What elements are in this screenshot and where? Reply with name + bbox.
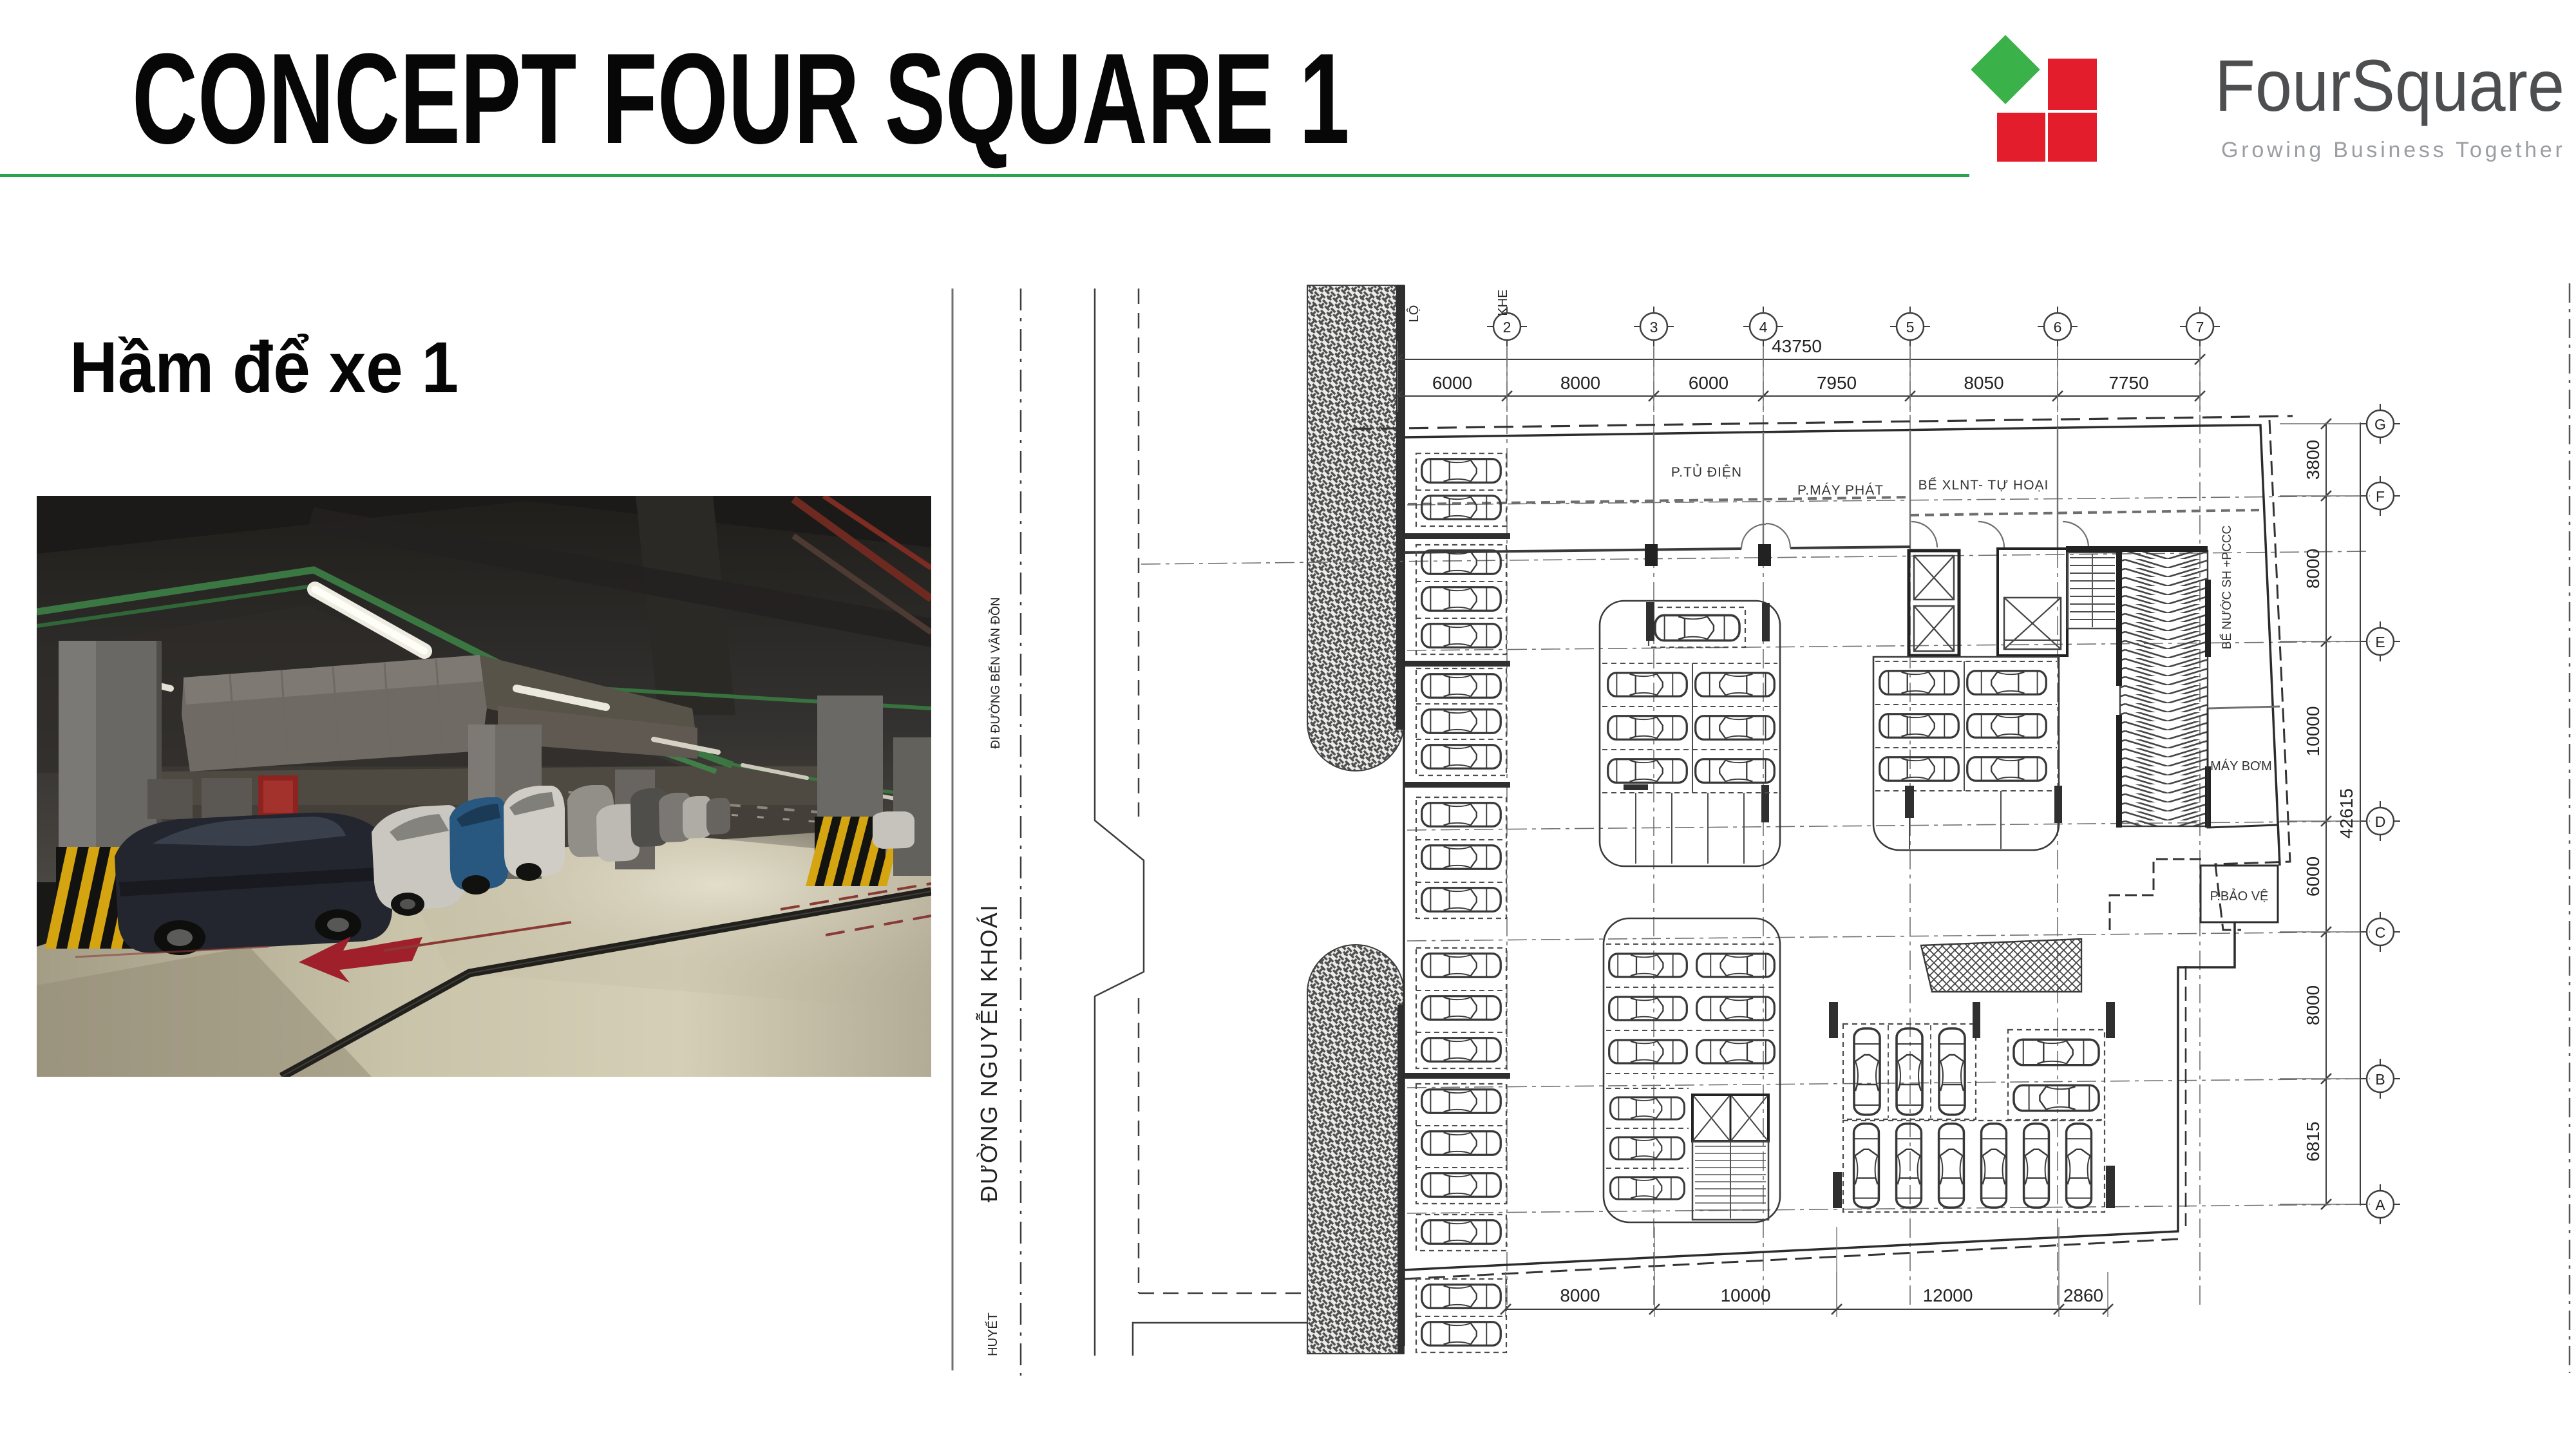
svg-text:ĐƯỜNG NGUYỄN KHOÁI: ĐƯỜNG NGUYỄN KHOÁI bbox=[975, 904, 1002, 1202]
svg-text:BỂ NƯỚC SH +PCCC: BỂ NƯỚC SH +PCCC bbox=[2220, 526, 2234, 649]
svg-text:7: 7 bbox=[2196, 319, 2204, 336]
svg-text:8000: 8000 bbox=[2303, 549, 2323, 589]
svg-text:A: A bbox=[2375, 1197, 2385, 1213]
svg-text:10000: 10000 bbox=[1721, 1285, 1771, 1305]
svg-text:HUYẾT: HUYẾT bbox=[985, 1312, 1000, 1356]
svg-text:12000: 12000 bbox=[1923, 1285, 1973, 1305]
svg-text:7950: 7950 bbox=[1817, 373, 1857, 393]
svg-text:7750: 7750 bbox=[2108, 373, 2148, 393]
svg-text:6000: 6000 bbox=[1689, 373, 1728, 393]
svg-text:8000: 8000 bbox=[1560, 1285, 1600, 1305]
svg-text:42615: 42615 bbox=[2336, 788, 2356, 838]
svg-text:G: G bbox=[2374, 416, 2386, 433]
svg-text:F: F bbox=[2376, 488, 2385, 505]
svg-text:43750: 43750 bbox=[1772, 336, 1822, 356]
svg-text:ĐI ĐƯỜNG BẾN VÂN ĐỒN: ĐI ĐƯỜNG BẾN VÂN ĐỒN bbox=[989, 597, 1003, 748]
svg-text:8000: 8000 bbox=[2303, 985, 2323, 1025]
svg-text:8000: 8000 bbox=[1560, 373, 1600, 393]
svg-text:6815: 6815 bbox=[2303, 1121, 2323, 1161]
svg-text:4: 4 bbox=[1759, 319, 1768, 336]
svg-text:8050: 8050 bbox=[1964, 373, 2003, 393]
svg-text:B: B bbox=[2375, 1071, 2385, 1088]
svg-text:P.BẢO VỆ: P.BẢO VỆ bbox=[2210, 889, 2269, 904]
svg-text:2860: 2860 bbox=[2063, 1285, 2103, 1305]
svg-text:MÁY BƠM: MÁY BƠM bbox=[2210, 759, 2272, 773]
svg-text:6000: 6000 bbox=[2303, 857, 2323, 896]
svg-text:3: 3 bbox=[1650, 319, 1658, 336]
svg-text:6: 6 bbox=[2054, 319, 2062, 336]
svg-text:D: D bbox=[2375, 813, 2386, 830]
svg-text:2: 2 bbox=[1503, 319, 1511, 336]
svg-text:3800: 3800 bbox=[2303, 440, 2323, 480]
svg-text:KHE: KHE bbox=[1496, 289, 1510, 316]
svg-text:6000: 6000 bbox=[1432, 373, 1472, 393]
svg-text:LỘ: LỘ bbox=[1406, 305, 1421, 323]
svg-text:P.MÁY PHÁT: P.MÁY PHÁT bbox=[1797, 483, 1884, 498]
svg-text:10000: 10000 bbox=[2303, 706, 2323, 757]
svg-text:5: 5 bbox=[1906, 319, 1915, 336]
svg-text:BỂ XLNT- TỰ HOẠI: BỂ XLNT- TỰ HOẠI bbox=[1918, 478, 2049, 493]
svg-text:C: C bbox=[2375, 924, 2386, 941]
svg-text:E: E bbox=[2375, 634, 2385, 650]
svg-text:P.TỦ ĐIỆN: P.TỦ ĐIỆN bbox=[1671, 464, 1742, 480]
